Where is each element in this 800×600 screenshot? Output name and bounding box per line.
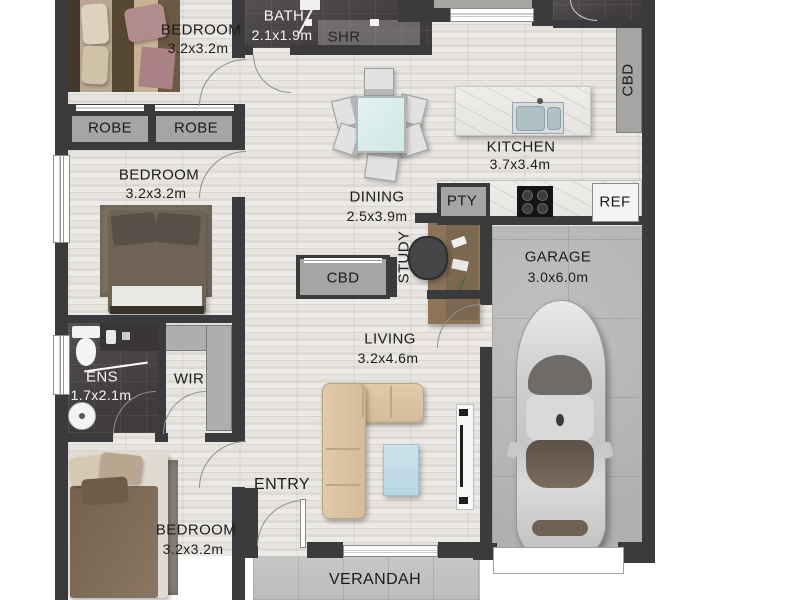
label-bedroom1-dims: 3.2x3.2m — [168, 40, 229, 56]
wall-segment — [290, 45, 432, 55]
wall-segment — [438, 542, 483, 558]
wall-garage-left-b — [480, 347, 492, 556]
label-shower: SHR — [328, 29, 361, 46]
wall-segment — [307, 542, 343, 558]
wall-laundry-bottom — [553, 20, 642, 28]
label-bedroom3-name: BEDROOM — [156, 522, 236, 539]
label-robe-left: ROBE — [88, 120, 132, 137]
cbd-hall-slider — [304, 258, 382, 263]
bed-footboard — [110, 306, 204, 314]
sofa-cushion-line — [362, 386, 364, 418]
label-garage-dims: 3.0x6.0m — [528, 269, 589, 285]
label-kitchen-name: KITCHEN — [487, 139, 556, 156]
label-wir: WIR — [174, 371, 204, 388]
toilet — [72, 326, 100, 368]
tv-speaker — [459, 409, 468, 416]
wall-segment — [532, 0, 553, 26]
window — [53, 155, 70, 243]
sink-basin-small — [547, 107, 561, 130]
wall-robe-bottom — [68, 143, 245, 150]
wall-entry-pillar — [240, 488, 258, 558]
label-bath-dims: 2.1x1.9m — [252, 27, 313, 43]
toilet-tank — [72, 326, 100, 338]
burner — [537, 190, 548, 201]
sofa-seat-vertical — [322, 383, 366, 519]
paper — [451, 258, 469, 271]
burner — [537, 203, 548, 214]
label-bedroom1-name: BEDROOM — [161, 22, 241, 39]
car-windshield — [526, 440, 594, 488]
bed-bedroom3 — [68, 452, 168, 598]
living-rug — [383, 444, 419, 496]
bed-bedroom2 — [108, 210, 206, 314]
wall-segment — [155, 433, 168, 442]
label-entry: ENTRY — [254, 476, 310, 494]
bed-headboard — [68, 0, 80, 92]
wall-bed2-bottom — [68, 315, 245, 323]
wall-segment — [398, 0, 434, 22]
ens-basin — [68, 402, 96, 430]
toilet-bowl — [76, 338, 96, 366]
shower-head-icon — [305, 19, 312, 26]
tv-screen — [460, 425, 463, 487]
wir-shelf-right — [206, 325, 232, 431]
label-ensuite-name: ENS — [86, 369, 118, 386]
dining-chair — [364, 148, 400, 182]
floor-plan: BEDROOM 3.2x3.2m BATH 2.1x1.9m SHR KITCH… — [0, 0, 800, 600]
laundry-floor — [553, 0, 642, 22]
pillow — [155, 212, 201, 246]
label-living-dims: 3.2x4.6m — [358, 350, 419, 366]
tv-speaker — [459, 497, 468, 504]
tv-unit — [456, 404, 474, 510]
sink-basin-large — [516, 106, 545, 131]
wall-left — [55, 0, 68, 600]
ens-vanity — [100, 323, 158, 351]
kitchen-sink — [512, 102, 564, 134]
label-ensuite-dims: 1.7x2.1m — [71, 387, 132, 403]
dining-table — [356, 96, 406, 153]
label-bedroom2-dims: 3.2x3.2m — [126, 185, 187, 201]
window — [53, 335, 70, 395]
car — [508, 298, 608, 558]
study-chair — [408, 236, 448, 280]
wall-segment — [430, 8, 452, 22]
vanity-item — [106, 330, 116, 344]
label-study: STUDY — [396, 231, 413, 284]
wall-study-bottom — [427, 290, 480, 299]
label-cbd-kitchen: CBD — [620, 64, 637, 97]
label-bedroom3-dims: 3.2x3.2m — [163, 541, 224, 557]
label-bath-name: BATH — [264, 8, 305, 25]
window — [343, 545, 438, 557]
label-garage-name: GARAGE — [525, 249, 592, 266]
label-fridge: REF — [599, 194, 630, 211]
cooktop — [517, 186, 553, 217]
garage-door — [493, 547, 624, 574]
dining-chair — [364, 68, 394, 96]
pillow — [111, 212, 158, 246]
paper — [451, 236, 467, 248]
pillow — [81, 3, 110, 45]
label-dining-name: DINING — [350, 189, 405, 206]
robe-slider — [76, 105, 144, 111]
entry-door-leaf — [300, 499, 306, 548]
pillow — [81, 476, 129, 505]
wall-right — [642, 0, 655, 563]
wall-garage-left-a — [480, 222, 492, 305]
wall-segment — [68, 433, 113, 442]
sofa-cushion-line — [390, 386, 392, 418]
label-verandah: VERANDAH — [329, 571, 421, 589]
pillow — [81, 45, 109, 84]
label-dining-dims: 2.5x3.9m — [347, 208, 408, 224]
sofa-cushion-line — [326, 448, 360, 450]
window — [450, 8, 534, 22]
label-cbd-hall: CBD — [327, 270, 360, 287]
label-bedroom2-name: BEDROOM — [119, 167, 199, 184]
label-pantry: PTY — [447, 193, 477, 210]
label-robe-right: ROBE — [174, 120, 218, 137]
label-kitchen-dims: 3.7x3.4m — [490, 156, 551, 172]
car-antenna — [556, 414, 564, 426]
shower-tap-icon — [370, 19, 379, 26]
bed-bedroom1 — [68, 0, 180, 92]
basin-drain — [79, 413, 85, 419]
sofa-cushion-line — [326, 484, 360, 486]
bed-sheet — [112, 286, 202, 308]
wall-ens-wir-divider — [158, 323, 166, 433]
burner — [522, 203, 533, 214]
sink-faucet — [537, 98, 543, 104]
vanity-item — [122, 332, 130, 340]
wall-segment — [245, 45, 253, 55]
burner — [522, 190, 533, 201]
car-front-grille — [532, 520, 588, 536]
label-living-name: LIVING — [364, 331, 416, 348]
